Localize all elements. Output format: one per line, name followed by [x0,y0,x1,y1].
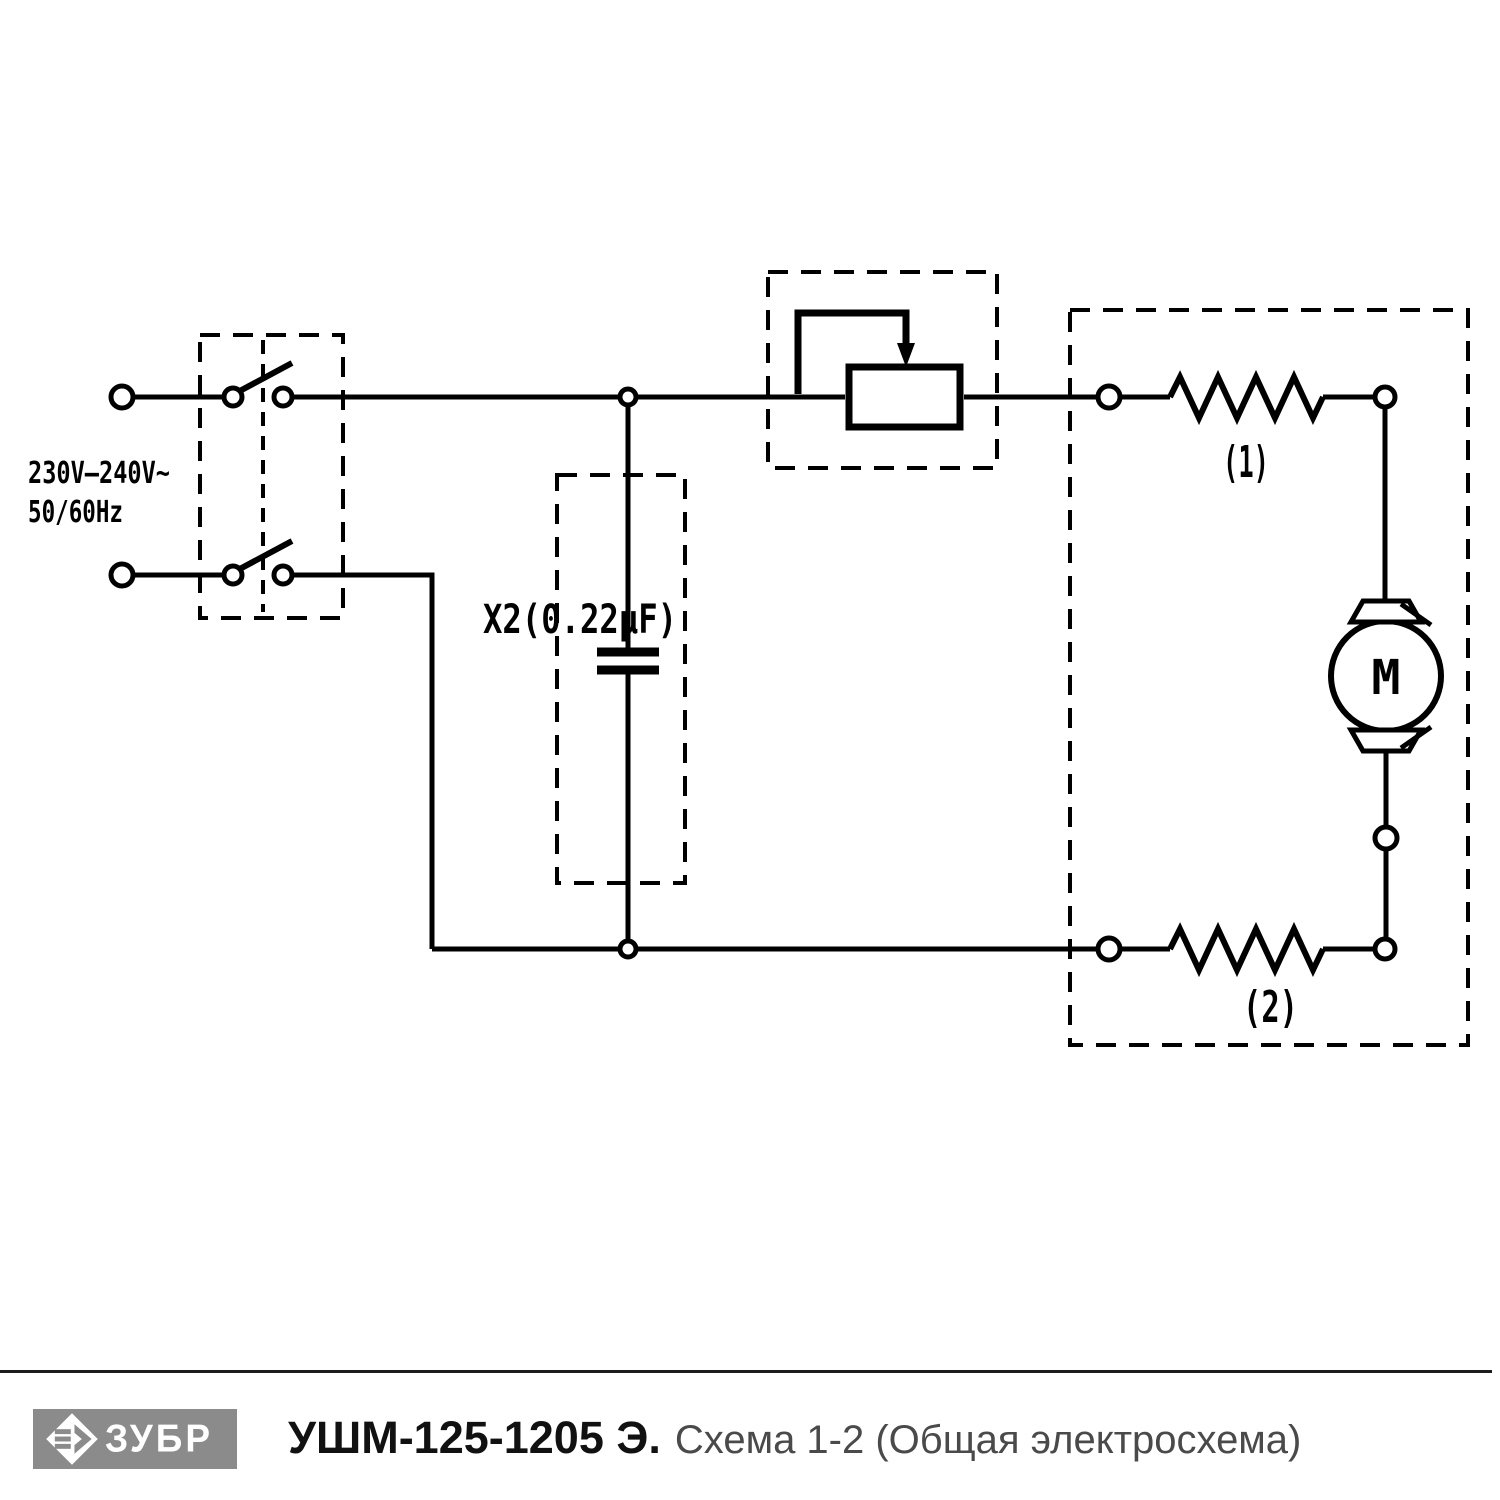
circuit-schematic: 230V–240V~ 50/60Hz X2(0.22µF) (1) (2) [0,0,1500,1380]
field-winding-1-label: (1) [1223,437,1269,488]
switch-contact-bottom-right [274,566,292,584]
footer-caption: УШМ-125-1205 Э. Схема 1-2 (Общая электро… [288,1412,1301,1464]
controller-feedback-arrowhead [897,343,915,367]
wire-bottom-feed-corner [294,575,432,949]
field-winding-2 [1170,929,1323,970]
logo-bar-1 [55,1429,71,1434]
armature-terminal [1375,827,1397,849]
voltage-label-line1: 230V–240V~ [28,456,170,491]
controller-body [849,367,960,427]
schematic-subtitle: Схема 1-2 (Общая электросхема) [675,1418,1301,1463]
motor-label: M [1372,650,1401,706]
logo-bar-3 [55,1444,71,1449]
switch-contact-top-left [224,388,242,406]
field-winding-2-label: (2) [1243,982,1298,1033]
capacitor-label: X2(0.22µF) [483,597,677,643]
winding2-motor-node [1375,939,1395,959]
schematic-page: 230V–240V~ 50/60Hz X2(0.22µF) (1) (2) [0,0,1500,1500]
model-title: УШМ-125-1205 Э. [288,1412,661,1464]
wires [133,397,1386,949]
zubr-logo: ЗУБР [33,1409,237,1469]
motorbox-terminal-bottom [1098,938,1120,960]
speed-controller [768,272,997,468]
motorbox-terminal-top [1098,386,1120,408]
bottom-bus-node [620,941,636,957]
logo-bar-2 [55,1437,71,1442]
power-input: 230V–240V~ 50/60Hz [28,386,170,586]
switch-contact-top-right [274,388,292,406]
motor-unit: (1) (2) M [1070,310,1468,1045]
winding1-motor-node [1375,387,1395,407]
suppression-capacitor: X2(0.22µF) [483,475,685,883]
field-winding-1 [1170,377,1323,418]
top-bus-node [620,389,636,405]
input-terminal-bottom [111,564,133,586]
input-terminal-top [111,386,133,408]
brand-name: ЗУБР [105,1417,213,1461]
capacitor-dashed-box [557,475,685,883]
zubr-logo-icon [45,1412,99,1466]
switch-contact-bottom-left [224,566,242,584]
voltage-label-line2: 50/60Hz [28,495,123,530]
footer-divider [0,1370,1492,1373]
